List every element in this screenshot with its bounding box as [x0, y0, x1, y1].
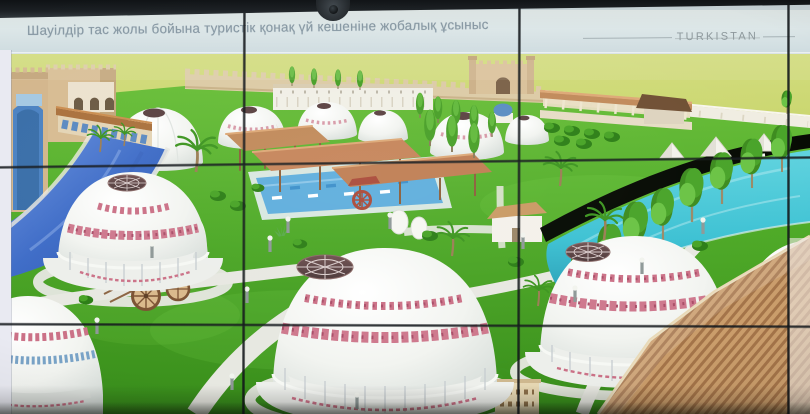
logo-text: TURKISTAN — [677, 30, 758, 43]
logo-rule-right — [763, 36, 795, 37]
render-left-margin — [0, 50, 11, 414]
video-wall-seam-vertical-3 — [787, 0, 790, 414]
masterplan-render — [0, 0, 810, 414]
video-wall-photo: Шауілдір тас жолы бойына туристік қонақ … — [0, 0, 810, 414]
webcam-lens — [329, 5, 338, 14]
portal-iwan — [8, 70, 48, 212]
lodging-block — [273, 84, 433, 110]
turkistan-logo: TURKISTAN — [583, 30, 795, 44]
logo-rule-left — [583, 37, 672, 39]
bottom-shadow — [0, 402, 810, 414]
